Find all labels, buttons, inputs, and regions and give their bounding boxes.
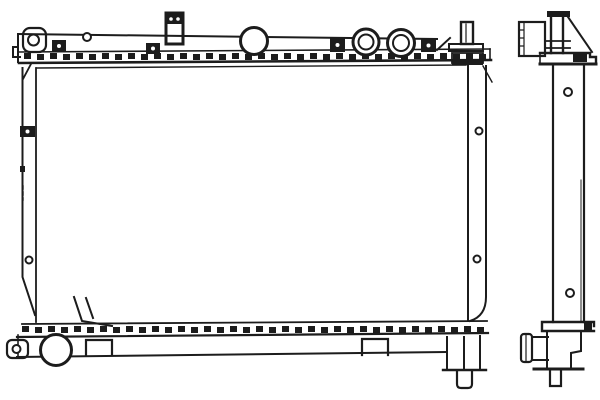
crimp-tab — [141, 54, 148, 60]
crimp-tab — [464, 326, 471, 332]
bottom-mount-bracket-left — [86, 340, 112, 355]
crimp-tab — [115, 54, 122, 60]
clip-speck — [336, 43, 340, 47]
header-bottom-rule — [19, 60, 491, 63]
crimp-tab — [466, 53, 473, 59]
crimp-tab — [451, 327, 458, 333]
rivet-hole — [476, 128, 483, 135]
crimp-tab — [232, 53, 239, 59]
right-side-plate-outer — [470, 66, 486, 321]
crimp-tab — [284, 53, 291, 59]
crimp-tab — [24, 53, 31, 59]
rivet-hole — [474, 256, 481, 263]
bottom-header-rule — [17, 333, 488, 337]
crimp-tab — [414, 53, 421, 59]
side-gusset — [568, 17, 592, 52]
side-top-flange — [540, 53, 596, 63]
crimp-tab — [63, 54, 70, 60]
diagram-canvas — [0, 0, 600, 400]
crimp-tab — [89, 54, 96, 60]
core-side-plates — [20, 66, 492, 322]
crimp-tab — [425, 327, 432, 333]
core-top-edge — [37, 65, 466, 68]
crimp-tab — [180, 53, 187, 59]
crimp-tab — [139, 327, 146, 333]
rivet-hole — [13, 345, 21, 353]
crimp-tab — [336, 53, 343, 59]
bottom-header-crimp — [22, 326, 484, 333]
bottom-ports — [41, 335, 72, 366]
crimp-tab — [399, 327, 406, 333]
side-top — [519, 11, 596, 64]
clip-speck — [151, 47, 155, 51]
side-lower-tank — [547, 331, 581, 367]
crimp-tab — [167, 54, 174, 60]
crimp-tab — [386, 326, 393, 332]
left-side-plate-outer — [23, 68, 36, 315]
front-view — [7, 13, 492, 388]
bottom-tank-bottom-edge — [17, 352, 446, 357]
holes-layer — [13, 33, 575, 353]
bracket-arm — [545, 41, 570, 48]
crimp-tab — [204, 326, 211, 332]
crimp-tab — [256, 326, 263, 332]
crimp-tab — [76, 53, 83, 59]
crimp-tab — [35, 327, 42, 333]
bottom-tank — [7, 297, 488, 388]
crimp-tab — [128, 53, 135, 59]
crimp-tab — [297, 54, 304, 60]
drain-boss — [41, 335, 72, 366]
crimp-tab — [193, 54, 200, 60]
upper-mount-bracket — [166, 13, 183, 44]
crimp-tab — [206, 53, 213, 59]
crimp-tab — [438, 326, 445, 332]
crimp-tab — [360, 326, 367, 332]
crimp-tab — [37, 54, 44, 60]
crimp-tab — [347, 327, 354, 333]
bracket-hole — [176, 17, 180, 21]
outlet-pipe — [532, 337, 548, 360]
top-left-stay — [23, 64, 31, 79]
crimp-tab — [230, 326, 237, 332]
crimp-tab — [440, 53, 447, 59]
crimp-tab — [100, 326, 107, 332]
crimp-tab — [349, 54, 356, 60]
rivet-hole — [26, 257, 33, 264]
crimp-tab — [310, 53, 317, 59]
side-bottom — [521, 322, 594, 386]
crimp-tab — [48, 326, 55, 332]
top-right-pin — [461, 22, 473, 44]
crimp-tab — [282, 326, 289, 332]
rivet-hole — [28, 35, 39, 46]
left-plate-tab — [20, 166, 25, 172]
top-ports — [241, 28, 415, 57]
crimp-tab — [334, 326, 341, 332]
crimp-tab — [178, 326, 185, 332]
crimp-tab — [126, 326, 133, 332]
rivet-hole — [564, 88, 572, 96]
inlet-port-ring — [388, 30, 415, 57]
crimp-tab — [308, 326, 315, 332]
crimp-tab — [87, 327, 94, 333]
crimp-tab — [74, 326, 81, 332]
crimp-tab — [61, 327, 68, 333]
crimp-tab — [269, 327, 276, 333]
clip-speck — [57, 44, 61, 48]
right-plate-gusset — [483, 66, 492, 82]
rivet-hole — [83, 33, 91, 41]
bottom-right-pin — [457, 371, 472, 388]
radiator-diagram — [0, 0, 600, 400]
crimp-tab — [102, 53, 109, 59]
crimp-tab — [321, 327, 328, 333]
bracket-hole — [169, 17, 173, 21]
crimp-tab — [152, 326, 159, 332]
crimp-tab — [295, 327, 302, 333]
crimp-tab — [271, 54, 278, 60]
filler-neck-cap — [547, 11, 570, 17]
clip-speck — [427, 44, 431, 48]
crimp-tab — [165, 327, 172, 333]
radiator-cap — [241, 28, 268, 55]
crimp-tab — [50, 53, 57, 59]
crimp-tab — [113, 327, 120, 333]
crimp-tab — [191, 327, 198, 333]
side-core-column — [553, 66, 584, 322]
top-left-hook — [13, 34, 20, 62]
side-view — [519, 11, 596, 386]
crimp-tab — [219, 54, 226, 60]
crimp-tab — [243, 327, 250, 333]
side-upper-bracket — [519, 22, 545, 56]
crimp-tab — [323, 54, 330, 60]
side-bottom-pin — [550, 371, 561, 386]
rivet-hole — [566, 289, 574, 297]
crimp-tab — [22, 326, 29, 332]
clip-speck — [26, 130, 30, 134]
lower-left-stay — [74, 297, 112, 326]
crimp-tab — [373, 327, 380, 333]
crimp-tab — [375, 54, 382, 60]
crimp-tab — [412, 326, 419, 332]
crimp-tab — [217, 327, 224, 333]
bottom-right-channel — [447, 336, 480, 370]
inlet-port-ring — [353, 29, 379, 55]
